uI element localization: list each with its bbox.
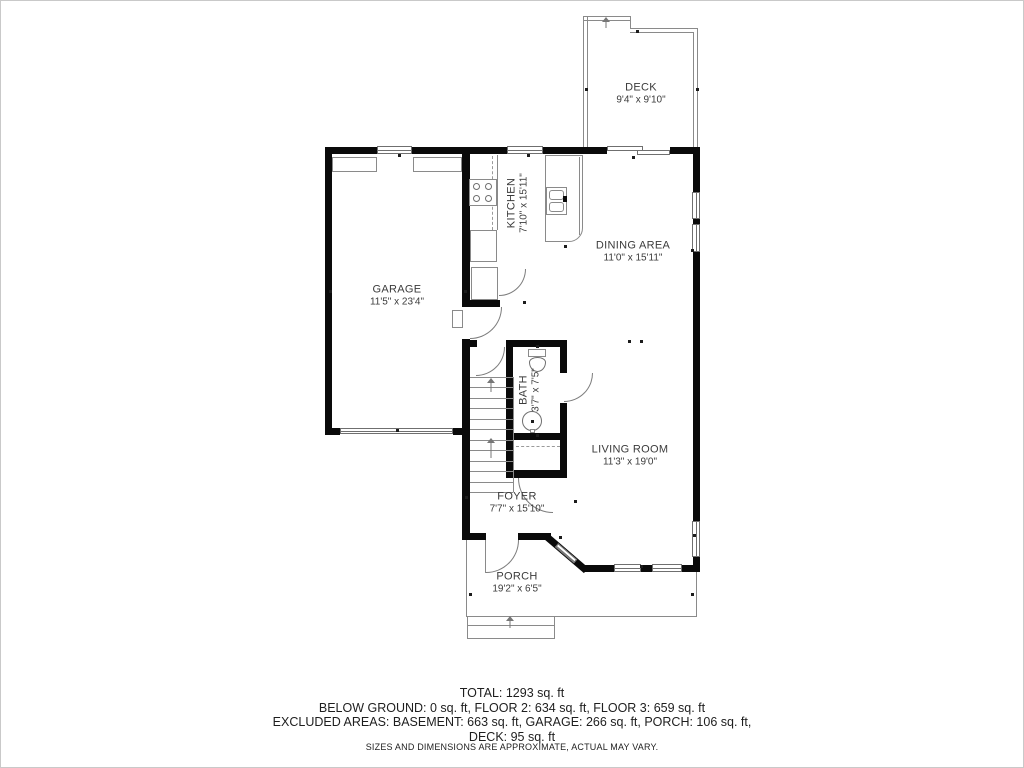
refrigerator — [470, 230, 497, 262]
wall-foyer-bottom-left — [462, 533, 486, 540]
wall-right-3 — [693, 252, 700, 521]
porch-step-bottom — [467, 638, 555, 639]
stair-tread — [470, 419, 513, 420]
wall-bath-right-upper — [560, 340, 567, 373]
summary-total: TOTAL: 1293 sq. ft — [0, 686, 1024, 701]
wall-top-2 — [412, 147, 507, 154]
bay-window — [555, 543, 577, 563]
wall-right-4 — [693, 557, 700, 572]
stair-tread — [470, 398, 513, 399]
wall-bath-right-lower — [560, 403, 567, 478]
dim-dot — [632, 156, 635, 159]
garage-dims: 11'5" x 23'4" — [370, 297, 424, 309]
kitchen-sink-basin-2 — [549, 202, 564, 212]
room-label-living: LIVING ROOM 11'3" x 19'0" — [592, 443, 669, 468]
dim-dot — [628, 340, 631, 343]
garage-entry-door-arc — [470, 307, 502, 339]
summary-excluded: EXCLUDED AREAS: BASEMENT: 663 sq. ft, GA… — [0, 715, 1024, 730]
room-label-kitchen: KITCHEN 7'10" x 15'11" — [505, 173, 530, 233]
closet-rod — [516, 446, 560, 447]
dim-dot — [329, 290, 332, 293]
deck-name: DECK — [616, 81, 665, 94]
stair-tread — [470, 408, 513, 409]
dining-name: DINING AREA — [596, 239, 670, 252]
stove-burner-2 — [485, 183, 492, 190]
dim-dot — [396, 429, 399, 432]
toilet-tank — [528, 349, 546, 357]
dim-dot — [691, 249, 694, 252]
dim-dot — [523, 301, 526, 304]
foyer-name: FOYER — [490, 490, 545, 503]
deck-rail-top-outer — [630, 28, 698, 29]
deck-rail-left-inner — [587, 16, 588, 147]
bath-name: BATH — [517, 368, 530, 412]
wall-top-3 — [543, 147, 607, 154]
stair-tread — [470, 471, 513, 472]
stove-burner-4 — [485, 195, 492, 202]
living-window-right — [692, 521, 700, 557]
bath-sink-faucet — [530, 429, 535, 433]
wall-right-1 — [693, 147, 700, 192]
disclaimer-text: SIZES AND DIMENSIONS ARE APPROXIMATE, AC… — [0, 742, 1024, 752]
room-label-porch: PORCH 19'2" x 6'5" — [492, 570, 541, 595]
area-summary: TOTAL: 1293 sq. ft BELOW GROUND: 0 sq. f… — [0, 686, 1024, 744]
porch-bottom-edge — [466, 616, 697, 617]
porch-step-left — [467, 616, 468, 639]
dim-dot — [527, 154, 530, 157]
dining-dims: 11'0" x 15'11" — [596, 253, 670, 265]
deck-rail-top-inner — [630, 32, 694, 33]
kitchen-window — [507, 146, 543, 154]
stove-burner-1 — [473, 183, 480, 190]
wall-front-1 — [583, 565, 614, 572]
porch-name: PORCH — [492, 570, 541, 583]
foyer-dims: 7'7" x 15'10" — [490, 504, 545, 516]
stair-tread — [470, 429, 513, 430]
dim-dot — [636, 30, 639, 33]
room-label-garage: GARAGE 11'5" x 23'4" — [370, 283, 424, 308]
summary-floors: BELOW GROUND: 0 sq. ft, FLOOR 2: 634 sq.… — [0, 701, 1024, 716]
deck-rail-left-outer — [583, 16, 584, 147]
dim-dot — [536, 345, 539, 348]
room-label-dining: DINING AREA 11'0" x 15'11" — [596, 239, 670, 264]
wall-hall-closet — [462, 300, 500, 307]
kitchen-dims: 7'10" x 15'11" — [519, 173, 531, 233]
dim-dot — [691, 593, 694, 596]
dim-dot — [696, 88, 699, 91]
porch-left-edge — [466, 540, 467, 617]
bath-dims: 3'7" x 7'5" — [531, 368, 543, 412]
stair-up-arrow-2 — [486, 438, 496, 458]
porch-step-arrow-icon — [505, 616, 515, 628]
kitchen-name: KITCHEN — [505, 173, 518, 233]
dim-dot — [640, 565, 643, 568]
wall-foyer-left — [462, 435, 470, 540]
deck-entry-arrow-icon — [601, 17, 611, 28]
living-dims: 11'3" x 19'0" — [592, 457, 669, 469]
garage-shelf-2 — [413, 157, 462, 172]
porch-right-edge — [696, 572, 697, 617]
front-door-leaf — [485, 540, 486, 573]
wall-top-1 — [325, 147, 377, 154]
bath-sink-drain — [531, 420, 534, 423]
wall-stair-divider — [506, 347, 513, 478]
front-door-arc — [486, 540, 519, 573]
dim-dot — [693, 534, 696, 537]
stair-up-arrow-1 — [486, 378, 496, 392]
wall-bath-top-left — [462, 340, 477, 347]
porch-step-right — [554, 616, 555, 639]
deck-slider-panel-2 — [637, 150, 670, 155]
dim-dot — [574, 500, 577, 503]
stair-tread — [470, 482, 513, 483]
kitchen-sink-basin-1 — [549, 190, 564, 200]
kitchen-counter-edge — [497, 155, 498, 230]
dim-dot — [398, 154, 401, 157]
kitchen-island-inner-edge — [579, 157, 580, 235]
porch-dims: 19'2" x 6'5" — [492, 584, 541, 596]
dim-dot — [564, 245, 567, 248]
dim-dot — [536, 434, 539, 437]
kitchen-faucet — [563, 196, 567, 202]
dim-dot — [469, 593, 472, 596]
stair-right-edge — [513, 377, 514, 492]
garage-shelf-1 — [332, 157, 377, 172]
stair-door-arc — [476, 347, 505, 376]
deck-dims: 9'4" x 9'10" — [616, 95, 665, 107]
dining-window-1 — [692, 192, 700, 219]
room-label-deck: DECK 9'4" x 9'10" — [616, 81, 665, 106]
wall-mid-upper — [462, 147, 470, 307]
wall-mid-lower — [462, 339, 470, 435]
wall-diagonal-bay — [544, 534, 588, 573]
wall-closet-bottom — [506, 470, 567, 478]
dim-dot — [465, 496, 468, 499]
room-label-foyer: FOYER 7'7" x 15'10" — [490, 490, 545, 515]
stair-tread — [470, 461, 513, 462]
deck-rail-right-inner — [693, 32, 694, 148]
wall-garage-bottom-left — [325, 428, 340, 435]
stove-burner-3 — [473, 195, 480, 202]
dining-window-2 — [692, 224, 700, 252]
garage-name: GARAGE — [370, 283, 424, 296]
kitchen-closet — [471, 267, 498, 300]
bath-door-arc — [564, 373, 593, 402]
floor-plan: DECK 9'4" x 9'10" GARAGE 11'5" x 23'4" K… — [0, 0, 1024, 768]
front-window-1 — [614, 564, 641, 572]
front-window-2 — [652, 564, 682, 572]
living-name: LIVING ROOM — [592, 443, 669, 456]
dim-dot — [559, 536, 562, 539]
garage-window — [377, 146, 412, 154]
dim-dot — [585, 88, 588, 91]
room-label-bath: BATH 3'7" x 7'5" — [517, 368, 542, 412]
kitchen-closet-door-arc — [499, 269, 526, 296]
dim-dot — [464, 290, 467, 293]
garage-entry-step — [452, 310, 463, 328]
dim-dot — [640, 340, 643, 343]
